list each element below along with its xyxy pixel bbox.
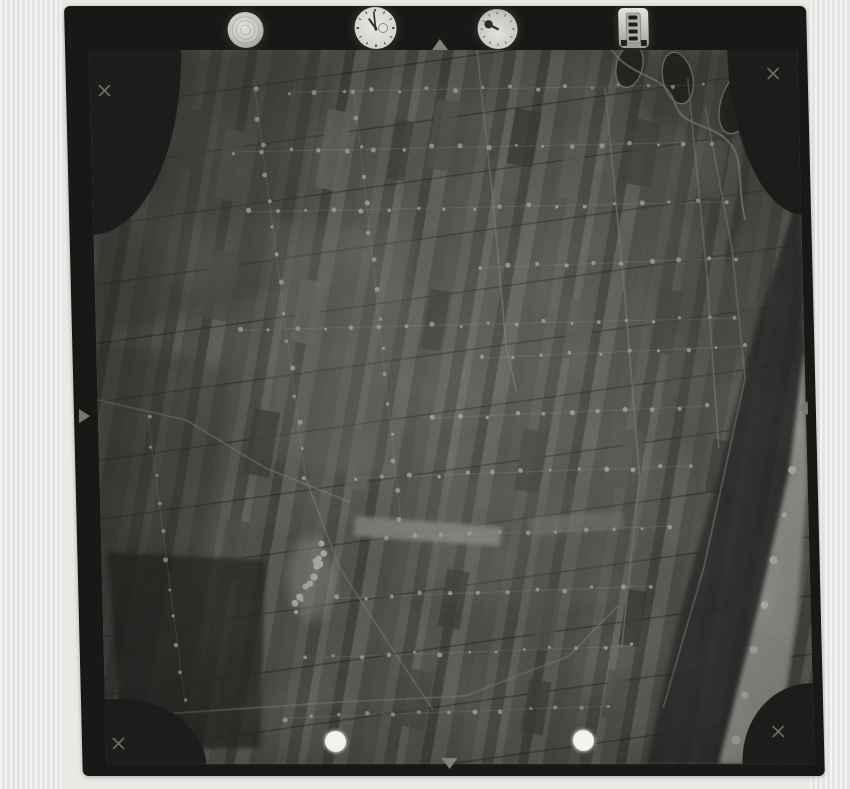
film-grain-layer bbox=[89, 50, 814, 764]
scanner-bed bbox=[0, 0, 850, 789]
fiducial-notch-left-icon bbox=[79, 409, 90, 423]
altimeter-gauge bbox=[477, 9, 518, 49]
fiducial-notch-right-icon bbox=[797, 401, 808, 415]
registration-punch-hole bbox=[572, 730, 594, 751]
frame-counter bbox=[618, 8, 649, 48]
film-frame bbox=[64, 6, 825, 776]
altimeter-needle-icon bbox=[477, 9, 518, 49]
counter-digits-icon bbox=[618, 8, 649, 48]
aerial-photo bbox=[89, 50, 814, 764]
aerial-photo-svg bbox=[89, 50, 814, 764]
fiducial-cross-icon bbox=[766, 67, 779, 80]
scanner-left-margin bbox=[0, 0, 63, 789]
spherical-level-gauge bbox=[227, 12, 264, 48]
clock-hands-icon bbox=[354, 7, 397, 49]
level-rings-icon bbox=[227, 12, 264, 48]
fiducial-notch-top-icon bbox=[432, 39, 448, 50]
clock-gauge bbox=[354, 7, 397, 49]
registration-punch-hole bbox=[324, 731, 346, 752]
fiducial-notch-bottom-icon bbox=[441, 758, 457, 769]
fiducial-cross-icon bbox=[98, 84, 111, 97]
fiducial-cross-icon bbox=[772, 725, 785, 738]
fiducial-cross-icon bbox=[112, 737, 125, 750]
